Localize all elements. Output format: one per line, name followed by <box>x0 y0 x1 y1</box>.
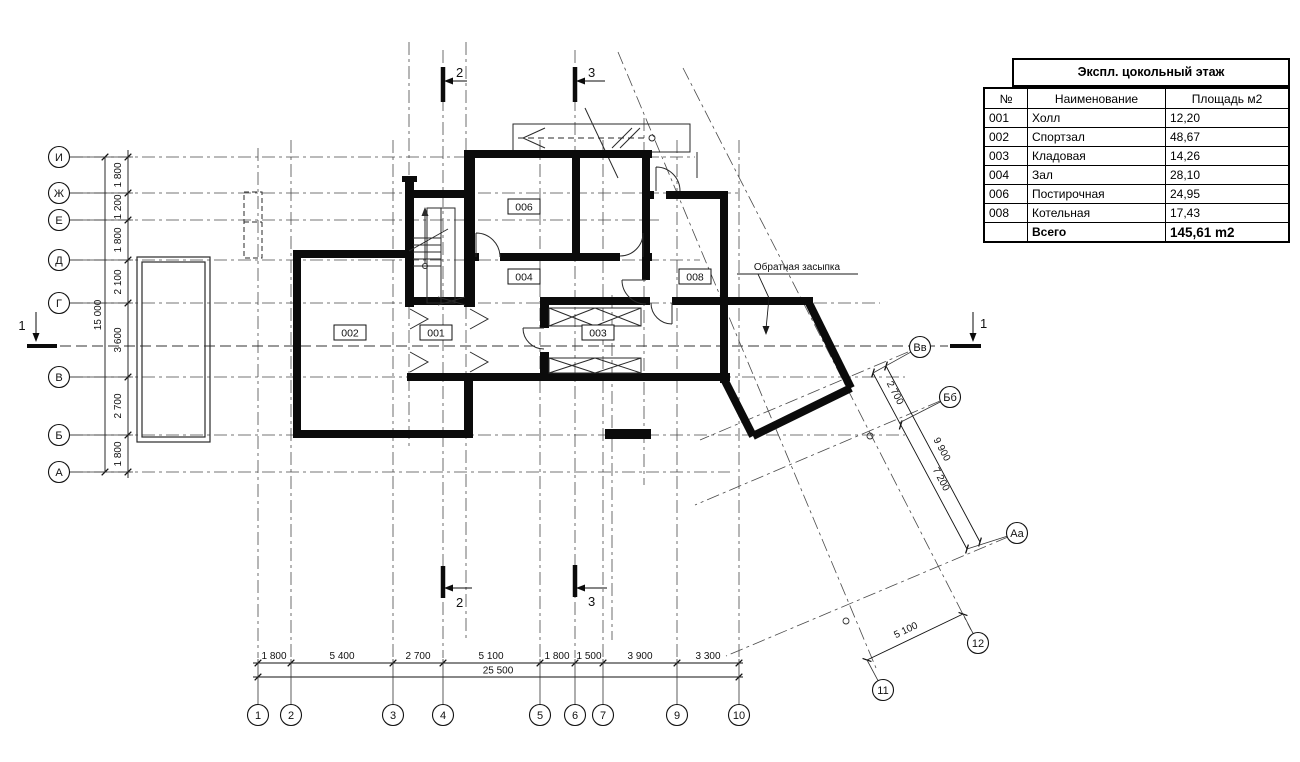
legend-grid: № Наименование Площадь м2 001 Холл 12,20… <box>983 87 1290 243</box>
axis-label: Г <box>56 298 62 310</box>
grid-line-diagonal <box>726 537 1008 656</box>
dimension-label: 7 200 <box>930 466 952 494</box>
room-label: 006 <box>508 199 540 214</box>
dimension-label: 2 700 <box>884 380 906 408</box>
dimension-label: 2 700 <box>405 651 430 662</box>
axis-label: В <box>55 372 62 384</box>
axis-marker: Бб <box>940 387 961 408</box>
dimension-label: 5 100 <box>478 651 503 662</box>
leader-arrow <box>763 326 770 335</box>
axis-marker: 6 <box>565 705 586 726</box>
walls-diagonal <box>724 301 851 436</box>
dimension-label: 1 800 <box>113 441 124 466</box>
axis-marker: Вв <box>910 337 931 358</box>
axis-label: 11 <box>877 685 888 697</box>
axis-label: 1 <box>255 710 261 722</box>
room-number: 004 <box>515 272 533 284</box>
axis-markers: ИЖЕДГВБА1234567910ВвБбАа1112 <box>49 147 1028 726</box>
room-label: 002 <box>334 325 366 340</box>
room-label: 004 <box>508 269 540 284</box>
room-number: 003 <box>589 328 607 340</box>
col-name: Наименование <box>1028 88 1166 109</box>
table-total-row: Всего 145,61 m2 <box>984 223 1289 243</box>
axis-marker: 12 <box>968 633 989 654</box>
axis-marker: 1 <box>248 705 269 726</box>
axis-extension <box>967 536 1007 549</box>
axis-label: Д <box>55 255 63 267</box>
axis-marker: Ж <box>49 183 70 204</box>
table-row: 002 Спортзал 48,67 <box>984 128 1289 147</box>
axis-label: 2 <box>288 710 294 722</box>
axis-label: И <box>55 152 63 164</box>
dimension-label: 3 600 <box>113 327 124 352</box>
col-area: Площадь м2 <box>1166 88 1290 109</box>
svg-text:1: 1 <box>18 318 25 333</box>
section-3-top: 3 <box>575 65 605 102</box>
axis-label: Б <box>55 430 62 442</box>
dimension-label: 5 100 <box>892 620 920 641</box>
axis-marker: 10 <box>729 705 750 726</box>
room-label: 008 <box>679 269 711 284</box>
axis-label: 3 <box>390 710 396 722</box>
dimension-label: 25 500 <box>483 666 514 677</box>
axis-label: Вв <box>913 342 926 354</box>
table-header-row: № Наименование Площадь м2 <box>984 88 1289 109</box>
dimension-label: 1 800 <box>261 651 286 662</box>
grid-lines <box>60 42 1008 668</box>
svg-text:2: 2 <box>456 595 463 610</box>
dimension-line <box>886 366 980 542</box>
axis-marker: Аа <box>1007 523 1028 544</box>
axis-marker: 4 <box>433 705 454 726</box>
room-number: 002 <box>341 328 359 340</box>
section-1-left: 1 <box>18 312 57 346</box>
axis-extension <box>899 402 941 423</box>
dimension-label: 9 900 <box>931 436 953 464</box>
axis-label: 10 <box>733 710 745 722</box>
dimension-label: 2 700 <box>113 393 124 418</box>
axis-marker: 9 <box>667 705 688 726</box>
axis-extension <box>873 352 911 373</box>
col-number: № <box>984 88 1028 109</box>
grid-line-diagonal <box>695 401 940 505</box>
axis-label: Е <box>55 215 62 227</box>
axis-marker: 3 <box>383 705 404 726</box>
table-row: 006 Постирочная 24,95 <box>984 185 1289 204</box>
legend-table: Экспл. цокольный этаж № Наименование Пло… <box>983 58 1290 243</box>
table-row: 004 Зал 28,10 <box>984 166 1289 185</box>
svg-text:2: 2 <box>456 65 463 80</box>
axis-marker: 7 <box>593 705 614 726</box>
axis-marker: В <box>49 367 70 388</box>
dimension-label: 1 800 <box>113 227 124 252</box>
axis-label: 7 <box>600 710 606 722</box>
grid-node-circle <box>843 618 849 624</box>
section-markers: 1 1 2 3 2 3 <box>18 65 987 610</box>
axis-marker: 2 <box>281 705 302 726</box>
svg-text:3: 3 <box>588 65 595 80</box>
section-3-bottom: 3 <box>575 565 607 609</box>
dimension-label: 3 300 <box>695 651 720 662</box>
table-row: 001 Холл 12,20 <box>984 109 1289 128</box>
room-label: 001 <box>420 325 452 340</box>
section-2-top: 2 <box>443 65 467 102</box>
table-row: 008 Котельная 17,43 <box>984 204 1289 223</box>
table-row: 003 Кладовая 14,26 <box>984 147 1289 166</box>
floor-plan-page: { "drawing": { "annotation_backfill": "О… <box>0 0 1300 757</box>
dashed-duct <box>244 192 262 258</box>
axis-label: Аа <box>1010 528 1024 540</box>
axis-marker: 11 <box>873 680 894 701</box>
axis-marker: А <box>49 462 70 483</box>
room-label: 003 <box>582 325 614 340</box>
axis-marker: Е <box>49 210 70 231</box>
room-number: 008 <box>686 272 704 284</box>
svg-text:1: 1 <box>980 316 987 331</box>
room-number: 006 <box>515 202 533 214</box>
section-2-bottom: 2 <box>443 566 472 610</box>
axis-label: А <box>55 467 63 479</box>
pool-outline <box>137 257 210 442</box>
section-1-right: 1 <box>950 312 987 346</box>
axis-label: 5 <box>537 710 543 722</box>
legend-title: Экспл. цокольный этаж <box>1012 58 1290 87</box>
room-number: 001 <box>427 328 445 340</box>
dimension-label: 2 100 <box>113 269 124 294</box>
axis-label: Ж <box>54 188 64 200</box>
axis-marker: 5 <box>530 705 551 726</box>
axis-marker: Г <box>49 293 70 314</box>
dimension-label: 1 500 <box>576 651 601 662</box>
axis-marker: Д <box>49 250 70 271</box>
svg-text:3: 3 <box>588 594 595 609</box>
axis-extension <box>963 614 973 634</box>
axis-marker: И <box>49 147 70 168</box>
backfill-label: Обратная засыпка <box>754 261 841 273</box>
dimension-label: 1 800 <box>113 162 124 187</box>
grid-node-circle <box>867 433 873 439</box>
exterior-stair <box>513 108 697 178</box>
dimension-label: 15 000 <box>93 299 104 330</box>
axis-extension <box>867 660 878 681</box>
dimension-label: 1 800 <box>544 651 569 662</box>
axis-label: 4 <box>440 710 446 722</box>
dimension-label: 5 400 <box>329 651 354 662</box>
dimension-label: 3 900 <box>627 651 652 662</box>
dimension-label: 1 200 <box>113 194 124 219</box>
axis-label: 9 <box>674 710 680 722</box>
axis-label: 6 <box>572 710 578 722</box>
axis-marker: Б <box>49 425 70 446</box>
axis-label: 12 <box>972 638 984 650</box>
axis-label: Бб <box>943 392 957 404</box>
staircase <box>409 207 465 305</box>
